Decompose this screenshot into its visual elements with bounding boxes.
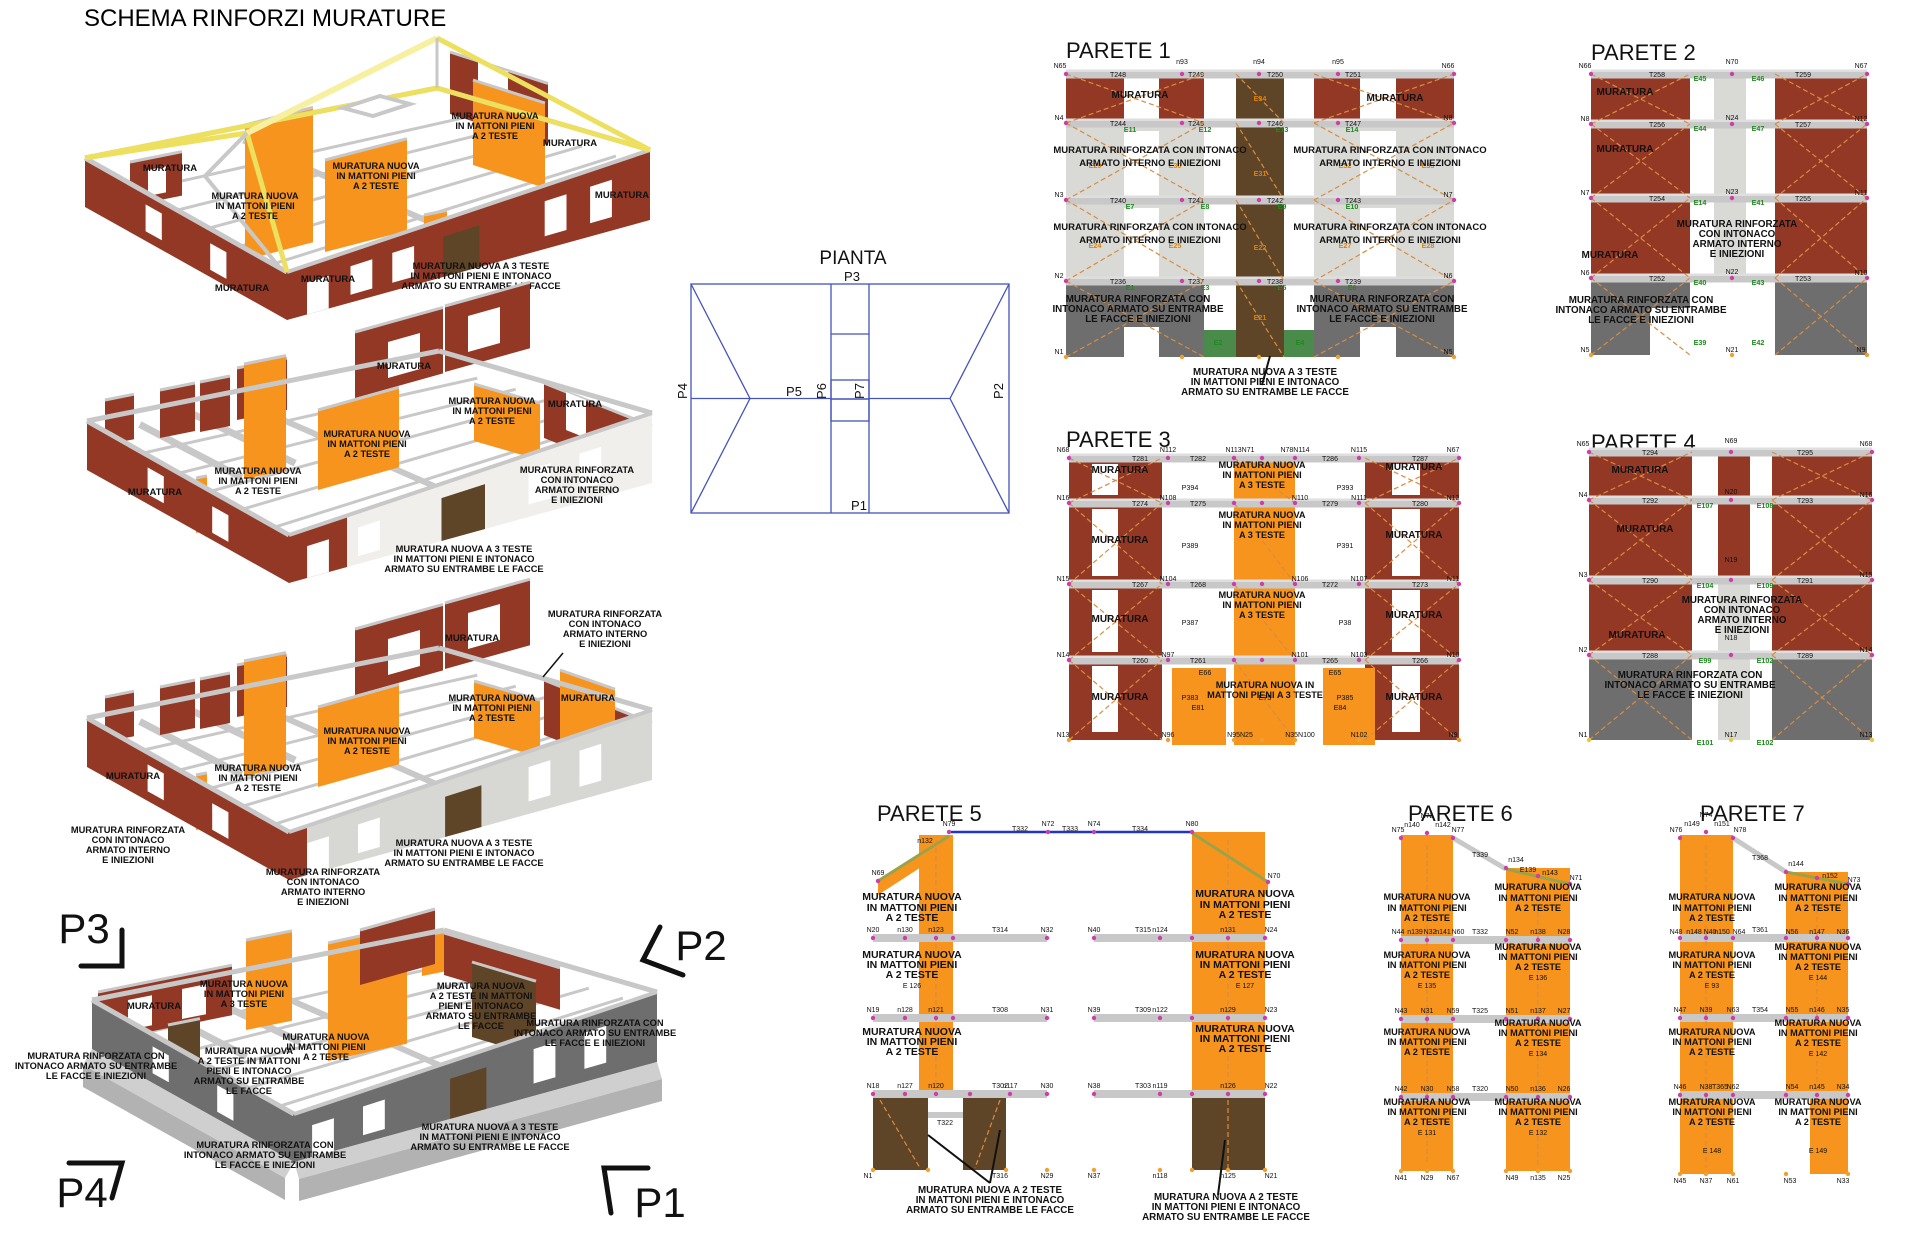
svg-text:T280: T280 [1412,501,1428,508]
svg-text:MURATURA RINFORZATA: MURATURA RINFORZATA [520,465,635,475]
svg-text:N112: N112 [1160,447,1176,454]
svg-text:N12: N12 [1855,116,1868,123]
svg-text:N64: N64 [1733,929,1746,936]
svg-text:n142: n142 [1435,822,1451,829]
svg-text:n129: n129 [1220,1007,1236,1014]
svg-text:T309: T309 [1135,1007,1151,1014]
svg-text:T368: T368 [1752,855,1768,862]
svg-text:MURATURA: MURATURA [377,361,431,372]
svg-text:N17: N17 [1725,732,1738,739]
svg-text:N2: N2 [1579,647,1588,654]
svg-text:ARMATO SU ENTRAMBE LE FACCE: ARMATO SU ENTRAMBE LE FACCE [1181,387,1349,398]
svg-text:T259: T259 [1795,72,1811,79]
svg-text:T332: T332 [1472,929,1488,936]
svg-text:MURATURA NUOVA: MURATURA NUOVA [323,726,410,736]
svg-text:N58: N58 [1447,1086,1460,1093]
svg-text:MURATURA: MURATURA [1385,530,1442,541]
svg-text:N70: N70 [1726,59,1739,66]
svg-text:N31: N31 [1041,1007,1054,1014]
svg-text:MURATURA NUOVA: MURATURA NUOVA [1668,1027,1755,1037]
svg-text:ARMATO INTERNO: ARMATO INTERNO [86,845,170,855]
svg-text:MURATURA NUOVA: MURATURA NUOVA [1383,892,1470,902]
svg-text:N26: N26 [1558,1086,1571,1093]
svg-text:MURATURA NUOVA A 3 TESTE: MURATURA NUOVA A 3 TESTE [413,261,550,271]
svg-text:CON INTONACO: CON INTONACO [287,877,360,887]
svg-text:N6: N6 [1581,270,1590,277]
svg-text:LE FACCE E INIEZIONI: LE FACCE E INIEZIONI [1588,315,1694,326]
svg-text:LE FACCE E INIEZIONI: LE FACCE E INIEZIONI [46,1071,146,1081]
svg-text:MURATURA: MURATURA [1091,614,1148,625]
svg-text:MURATURA RINFORZATA: MURATURA RINFORZATA [71,825,186,835]
svg-text:E45: E45 [1694,74,1707,83]
svg-text:MURATURA: MURATURA [1091,465,1148,476]
svg-text:N8: N8 [1444,115,1453,122]
svg-text:E 131: E 131 [1418,1130,1436,1137]
svg-text:MURATURA: MURATURA [1385,462,1442,473]
svg-text:N40: N40 [1088,927,1101,934]
svg-text:ARMATO INTERNO E INIEZIONI: ARMATO INTERNO E INIEZIONI [1079,158,1221,169]
svg-text:n151: n151 [1714,821,1730,828]
svg-text:n144: n144 [1788,861,1804,868]
svg-text:A 2 TESTE: A 2 TESTE [344,746,390,756]
svg-text:N30: N30 [1041,1083,1054,1090]
svg-text:IN MATTONI PIENI: IN MATTONI PIENI [1387,1037,1466,1047]
svg-text:MURATURA: MURATURA [1596,144,1653,155]
svg-text:MURATURA RINFORZATA CON: MURATURA RINFORZATA CON [526,1018,663,1028]
svg-text:E108: E108 [1757,501,1774,510]
svg-text:MURATURA: MURATURA [1616,524,1673,535]
svg-text:IN MATTONI PIENI: IN MATTONI PIENI [1222,600,1301,610]
svg-text:n140: n140 [1404,822,1420,829]
svg-text:N67: N67 [1447,1175,1460,1182]
svg-text:N61: N61 [1727,1178,1740,1185]
svg-text:MURATURA NUOVA: MURATURA NUOVA [1774,1018,1861,1028]
svg-text:n147: n147 [1809,929,1825,936]
svg-text:T289: T289 [1797,653,1813,660]
svg-text:N65: N65 [1054,63,1067,70]
svg-text:A 2 TESTE: A 2 TESTE [232,211,278,221]
svg-text:N21: N21 [1726,347,1739,354]
svg-text:P387: P387 [1182,618,1199,627]
svg-text:MURATURA RINFORZATA CON INTONA: MURATURA RINFORZATA CON INTONACO [1293,222,1486,233]
svg-text:n93: n93 [1176,59,1188,66]
svg-text:E3: E3 [1201,283,1210,292]
svg-text:T333: T333 [1062,826,1078,833]
svg-text:N31: N31 [1421,1008,1434,1015]
svg-text:N111: N111 [1351,495,1367,502]
svg-text:E66: E66 [1199,668,1212,677]
svg-text:IN MATTONI PIENI E INTONACO: IN MATTONI PIENI E INTONACO [393,848,534,858]
svg-text:IN MATTONI PIENI: IN MATTONI PIENI [1778,1028,1857,1038]
svg-text:N5: N5 [1444,349,1453,356]
svg-text:N67: N67 [1447,447,1460,454]
svg-text:n139: n139 [1407,929,1423,936]
svg-text:T257: T257 [1795,122,1811,129]
svg-text:N1: N1 [864,1173,873,1180]
svg-text:E 126: E 126 [903,983,921,990]
svg-text:N36: N36 [1837,929,1850,936]
svg-text:N25: N25 [1558,1175,1571,1182]
svg-text:MURATURA: MURATURA [595,190,649,201]
svg-text:N15: N15 [1860,572,1873,579]
svg-text:N113N71: N113N71 [1225,447,1254,454]
svg-text:E INIEZIONI: E INIEZIONI [551,495,603,505]
svg-text:MURATURA NUOVA: MURATURA NUOVA [1774,942,1861,952]
svg-text:IN MATTONI PIENI: IN MATTONI PIENI [215,201,294,211]
svg-text:A 2 TESTE: A 2 TESTE [353,181,399,191]
svg-text:N49: N49 [1506,1175,1519,1182]
svg-text:CON INTONACO: CON INTONACO [92,835,165,845]
svg-text:MURATURA NUOVA: MURATURA NUOVA [448,693,535,703]
svg-text:N35: N35 [1837,1007,1850,1014]
svg-text:LE FACCE E INIEZIONI: LE FACCE E INIEZIONI [1329,314,1435,325]
svg-text:T325: T325 [1472,1008,1488,1015]
svg-text:IN MATTONI PIENI: IN MATTONI PIENI [218,773,297,783]
svg-text:ARMATO SU ENTRAMBE LE FACCE: ARMATO SU ENTRAMBE LE FACCE [384,858,543,868]
svg-text:N28: N28 [1558,929,1571,936]
svg-text:N60: N60 [1452,929,1465,936]
svg-text:n135: n135 [1530,1175,1546,1182]
svg-text:IN MATTONI PIENI: IN MATTONI PIENI [1498,1107,1577,1117]
svg-text:T286: T286 [1322,456,1338,463]
svg-text:A 2 TESTE: A 2 TESTE [1515,903,1561,913]
svg-text:P1: P1 [851,498,867,513]
svg-text:N11: N11 [1855,190,1867,197]
svg-text:N38: N38 [1700,1084,1713,1091]
svg-text:LE FACCE E INIEZIONI: LE FACCE E INIEZIONI [215,1160,315,1170]
svg-text:A 2 TESTE: A 2 TESTE [1404,1047,1450,1057]
svg-text:N7: N7 [1581,190,1590,197]
svg-text:A 2 TESTE: A 2 TESTE [472,131,518,141]
svg-text:N5: N5 [1581,347,1590,354]
svg-text:A 2 TESTE: A 2 TESTE [1219,1043,1272,1055]
svg-text:E31: E31 [1254,169,1267,178]
svg-text:T334: T334 [1132,826,1148,833]
svg-text:n134: n134 [1508,857,1524,864]
svg-text:P3: P3 [844,269,860,284]
svg-text:N9: N9 [1449,732,1458,739]
svg-text:A 2 TESTE: A 2 TESTE [1689,1047,1735,1057]
svg-text:N59: N59 [1447,1008,1460,1015]
svg-text:P393: P393 [1337,483,1354,492]
svg-text:A 2 TESTE: A 2 TESTE [1689,1117,1735,1127]
svg-text:IN MATTONI PIENI: IN MATTONI PIENI [452,406,531,416]
svg-text:A 2 TESTE: A 2 TESTE [1404,970,1450,980]
svg-text:N52: N52 [1506,929,1519,936]
svg-text:IN MATTONI PIENI: IN MATTONI PIENI [1778,893,1857,903]
svg-text:A 2 TESTE: A 2 TESTE [1404,913,1450,923]
svg-text:IN MATTONI PIENI E INTONACO: IN MATTONI PIENI E INTONACO [410,271,551,281]
svg-text:n124: n124 [1152,927,1168,934]
svg-text:P3: P3 [58,905,109,952]
svg-text:N3: N3 [1579,572,1588,579]
svg-text:ARMATO INTERNO E INIEZIONI: ARMATO INTERNO E INIEZIONI [1319,235,1461,246]
svg-text:A 3 TESTE: A 3 TESTE [1239,480,1285,490]
svg-text:N21: N21 [1265,1173,1278,1180]
svg-text:E109: E109 [1757,581,1774,590]
svg-text:T303: T303 [1135,1083,1151,1090]
svg-text:n120: n120 [928,1083,944,1090]
svg-text:MURATURA NUOVA: MURATURA NUOVA [448,396,535,406]
svg-text:N19: N19 [867,1007,880,1014]
svg-text:MURATURA: MURATURA [143,163,197,174]
svg-text:n131: n131 [1220,927,1236,934]
svg-text:E INIEZIONI: E INIEZIONI [1710,249,1765,260]
svg-text:MURATURA: MURATURA [1111,90,1168,101]
svg-text:ARMATO INTERNO: ARMATO INTERNO [563,629,647,639]
svg-text:E INIEZIONI: E INIEZIONI [1715,625,1770,636]
svg-text:T361: T361 [1752,927,1768,934]
svg-text:MURATURA RINFORZATA CON INTONA: MURATURA RINFORZATA CON INTONACO [1293,145,1486,156]
svg-text:E47: E47 [1752,124,1765,133]
svg-text:E139: E139 [1520,867,1536,874]
svg-text:N30: N30 [1421,1086,1434,1093]
svg-text:MURATURA NUOVA A 3 TESTE: MURATURA NUOVA A 3 TESTE [396,838,533,848]
svg-text:MURATURA RINFORZATA CON INTONA: MURATURA RINFORZATA CON INTONACO [1053,222,1246,233]
svg-text:T236: T236 [1110,279,1126,286]
svg-text:A 2 TESTE: A 2 TESTE [1689,913,1735,923]
svg-text:E21: E21 [1254,313,1267,322]
svg-text:E INIEZIONI: E INIEZIONI [579,639,631,649]
svg-text:A 2 TESTE: A 2 TESTE [1515,1117,1561,1127]
svg-text:MURATURA: MURATURA [1385,610,1442,621]
svg-text:MURATURA NUOVA: MURATURA NUOVA [1218,460,1305,470]
svg-text:n125: n125 [1220,1173,1236,1180]
svg-text:INTONACO ARMATO SU ENTRAMBE: INTONACO ARMATO SU ENTRAMBE [184,1150,346,1160]
svg-text:N20: N20 [867,927,880,934]
svg-text:MURATURA: MURATURA [561,693,615,704]
svg-text:T265: T265 [1322,658,1338,665]
svg-text:LE FACCE E INIEZIONI: LE FACCE E INIEZIONI [545,1038,645,1048]
svg-text:N16: N16 [1860,492,1873,499]
svg-text:MURATURA NUOVA: MURATURA NUOVA [282,1032,369,1042]
svg-text:LE FACCE E INIEZIONI: LE FACCE E INIEZIONI [1085,314,1191,325]
svg-text:N55: N55 [1786,1007,1799,1014]
svg-text:PIENI E INTONACO: PIENI E INTONACO [438,1001,523,1011]
svg-text:E39: E39 [1694,338,1707,347]
svg-text:E INIEZIONI: E INIEZIONI [297,897,349,907]
svg-text:CON INTONACO: CON INTONACO [569,619,642,629]
svg-text:N42: N42 [1395,1086,1408,1093]
svg-text:MURATURA: MURATURA [1611,465,1668,476]
svg-text:N79: N79 [943,821,956,828]
svg-text:N108: N108 [1160,495,1177,502]
svg-text:IN MATTONI PIENI: IN MATTONI PIENI [1222,470,1301,480]
svg-text:MURATURA: MURATURA [106,771,160,782]
svg-text:T275: T275 [1190,501,1206,508]
svg-text:INTONACO ARMATO SU ENTRAMBE: INTONACO ARMATO SU ENTRAMBE [15,1061,177,1071]
svg-text:N76: N76 [1670,827,1683,834]
svg-text:A 2 TESTE: A 2 TESTE [1795,903,1841,913]
svg-text:A 2 TESTE IN MATTONI: A 2 TESTE IN MATTONI [430,991,533,1001]
svg-text:N9: N9 [1857,347,1866,354]
svg-text:A 2 TESTE: A 2 TESTE [469,416,515,426]
svg-text:PIENI E INTONACO: PIENI E INTONACO [206,1066,291,1076]
svg-text:IN MATTONI PIENI E INTONACO: IN MATTONI PIENI E INTONACO [393,554,534,564]
svg-text:N53: N53 [1784,1178,1797,1185]
svg-text:A 3 TESTE: A 3 TESTE [1239,530,1285,540]
svg-text:IN MATTONI PIENI: IN MATTONI PIENI [1672,1037,1751,1047]
svg-text:n149: n149 [1684,821,1700,828]
svg-text:n146: n146 [1809,1007,1825,1014]
svg-text:MURATURA NUOVA: MURATURA NUOVA [451,111,538,121]
svg-text:MURATURA: MURATURA [548,399,602,410]
svg-text:IN MATTONI PIENI: IN MATTONI PIENI [218,476,297,486]
svg-text:n123: n123 [928,927,944,934]
svg-text:MURATURA NUOVA: MURATURA NUOVA [214,466,301,476]
svg-text:LE FACCE E INIEZIONI: LE FACCE E INIEZIONI [1637,690,1743,701]
svg-text:N39: N39 [1088,1007,1101,1014]
svg-text:N74: N74 [1700,812,1713,819]
svg-text:MURATURA NUOVA: MURATURA NUOVA [332,161,419,171]
svg-text:E 149: E 149 [1809,1148,1827,1155]
svg-text:N4: N4 [1579,492,1588,499]
svg-text:E81: E81 [1192,703,1205,712]
svg-text:IN MATTONI PIENI: IN MATTONI PIENI [1387,903,1466,913]
svg-text:T279: T279 [1322,501,1338,508]
svg-text:n130: n130 [897,927,913,934]
svg-text:MURATURA NUOVA: MURATURA NUOVA [1668,892,1755,902]
svg-text:MURATURA: MURATURA [127,1001,181,1012]
svg-text:A 2 TESTE: A 2 TESTE [1515,1038,1561,1048]
svg-text:N107: N107 [1351,576,1368,583]
svg-text:T248: T248 [1110,72,1126,79]
svg-text:E99: E99 [1699,656,1712,665]
svg-text:E34: E34 [1254,94,1267,103]
svg-text:N20: N20 [1725,489,1738,496]
svg-text:MURATURA: MURATURA [1596,87,1653,98]
svg-text:ARMATO SU ENTRAMBE LE FACCE: ARMATO SU ENTRAMBE LE FACCE [1142,1212,1310,1223]
svg-text:N8: N8 [1581,116,1590,123]
svg-text:MURATURA NUOVA: MURATURA NUOVA [1494,1018,1581,1028]
svg-text:A 3 TESTE: A 3 TESTE [1239,610,1285,620]
svg-text:MURATURA NUOVA: MURATURA NUOVA [1383,1097,1470,1107]
svg-text:MURATURA NUOVA: MURATURA NUOVA [211,191,298,201]
svg-text:N44: N44 [1392,929,1405,936]
svg-text:CON INTONACO: CON INTONACO [541,475,614,485]
svg-text:n137: n137 [1530,1008,1546,1015]
svg-text:E40: E40 [1694,278,1707,287]
svg-text:MURATURA: MURATURA [543,138,597,149]
svg-text:MURATURA: MURATURA [301,274,355,285]
svg-text:N22: N22 [1726,269,1739,276]
svg-text:N1: N1 [1055,349,1064,356]
svg-text:LE FACCE: LE FACCE [458,1021,504,1031]
svg-text:A 2 TESTE: A 2 TESTE [886,912,939,924]
svg-text:N1: N1 [1579,732,1588,739]
svg-text:MURATURA: MURATURA [1608,630,1665,641]
svg-text:T288: T288 [1642,653,1658,660]
svg-text:N29: N29 [1041,1173,1054,1180]
svg-text:T273: T273 [1412,582,1428,589]
svg-text:A 2 TESTE: A 2 TESTE [1795,1117,1841,1127]
svg-text:N69: N69 [1725,438,1738,445]
svg-text:ARMATO SU ENTRAMBE LE FACCE: ARMATO SU ENTRAMBE LE FACCE [906,1205,1074,1216]
svg-text:ARMATO INTERNO: ARMATO INTERNO [281,887,365,897]
svg-text:P6: P6 [814,383,829,399]
svg-text:E 148: E 148 [1703,1148,1721,1155]
svg-text:T314: T314 [992,927,1008,934]
svg-text:N22: N22 [1265,1083,1278,1090]
svg-text:A 2 TESTE: A 2 TESTE [886,1046,939,1058]
svg-text:N12: N12 [1447,495,1460,502]
svg-text:IN MATTONI PIENI: IN MATTONI PIENI [1498,952,1577,962]
svg-text:N13: N13 [1057,732,1070,739]
svg-text:P38: P38 [1339,618,1352,627]
svg-text:E 127: E 127 [1236,983,1254,990]
svg-text:E41: E41 [1752,198,1765,207]
svg-text:T272: T272 [1322,582,1338,589]
svg-text:E102: E102 [1757,738,1774,747]
svg-text:E46: E46 [1752,74,1765,83]
svg-text:ARMATO SU ENTRAMBE LE FACCE: ARMATO SU ENTRAMBE LE FACCE [410,1142,569,1152]
svg-text:N6: N6 [1444,273,1453,280]
svg-text:N56: N56 [1786,929,1799,936]
svg-text:E107: E107 [1697,501,1714,510]
svg-text:T316: T316 [992,1173,1008,1180]
svg-text:MURATURA NUOVA: MURATURA NUOVA [205,1046,293,1056]
svg-text:N16: N16 [1057,495,1070,502]
svg-text:A 2 TESTE: A 2 TESTE [235,486,281,496]
svg-text:A 2 TESTE IN MATTONI: A 2 TESTE IN MATTONI [198,1056,301,1066]
svg-text:N27: N27 [1558,1008,1571,1015]
svg-text:MURATURA RINFORZATA: MURATURA RINFORZATA [266,867,381,877]
svg-text:N110: N110 [1292,495,1308,502]
svg-text:MURATURA: MURATURA [1366,93,1423,104]
svg-text:E8: E8 [1201,202,1210,211]
svg-text:PARETE 3: PARETE 3 [1066,427,1171,452]
svg-text:PARETE 1: PARETE 1 [1066,38,1171,63]
svg-text:N32: N32 [1041,927,1054,934]
svg-text:ARMATO SU ENTRAMBE LE FACCE: ARMATO SU ENTRAMBE LE FACCE [384,564,543,574]
svg-text:N39: N39 [1700,1007,1713,1014]
svg-text:MURATURA: MURATURA [445,633,499,644]
svg-text:N47: N47 [1674,1007,1687,1014]
svg-text:E5: E5 [1278,283,1287,292]
svg-text:E14: E14 [1694,198,1707,207]
svg-text:T292: T292 [1642,498,1658,505]
svg-text:IN MATTONI PIENI: IN MATTONI PIENI [455,121,534,131]
svg-text:N106: N106 [1292,576,1309,583]
svg-text:N14: N14 [1057,652,1070,659]
svg-text:T252: T252 [1649,276,1665,283]
svg-text:N35N100: N35N100 [1285,732,1315,739]
svg-text:N115: N115 [1351,447,1367,454]
svg-text:n138: n138 [1530,929,1546,936]
svg-text:T294: T294 [1642,450,1658,457]
svg-text:MURATURA RINFORZATA: MURATURA RINFORZATA [548,609,663,619]
svg-text:P389: P389 [1182,541,1199,550]
svg-text:N18: N18 [1725,635,1738,642]
svg-text:N3: N3 [1055,192,1064,199]
svg-text:ARMATO SU ENTRAMBE: ARMATO SU ENTRAMBE [194,1076,305,1086]
svg-text:n117: n117 [1002,1083,1017,1090]
svg-text:E102: E102 [1757,656,1774,665]
svg-text:E 144: E 144 [1809,975,1827,982]
svg-text:n122: n122 [1152,1007,1168,1014]
svg-text:T260: T260 [1132,658,1148,665]
svg-text:T274: T274 [1132,501,1148,508]
svg-text:MURATURA NUOVA: MURATURA NUOVA [1774,1097,1861,1107]
svg-text:N80: N80 [1186,821,1199,828]
svg-text:N15: N15 [1057,576,1070,583]
svg-text:N24: N24 [1265,927,1278,934]
svg-text:P5: P5 [786,384,802,399]
svg-text:A 2 TESTE: A 2 TESTE [1689,970,1735,980]
svg-text:INTONACO ARMATO SU ENTRAMBE: INTONACO ARMATO SU ENTRAMBE [514,1028,676,1038]
svg-text:N95N25: N95N25 [1227,732,1253,739]
svg-text:E2: E2 [1214,338,1223,347]
